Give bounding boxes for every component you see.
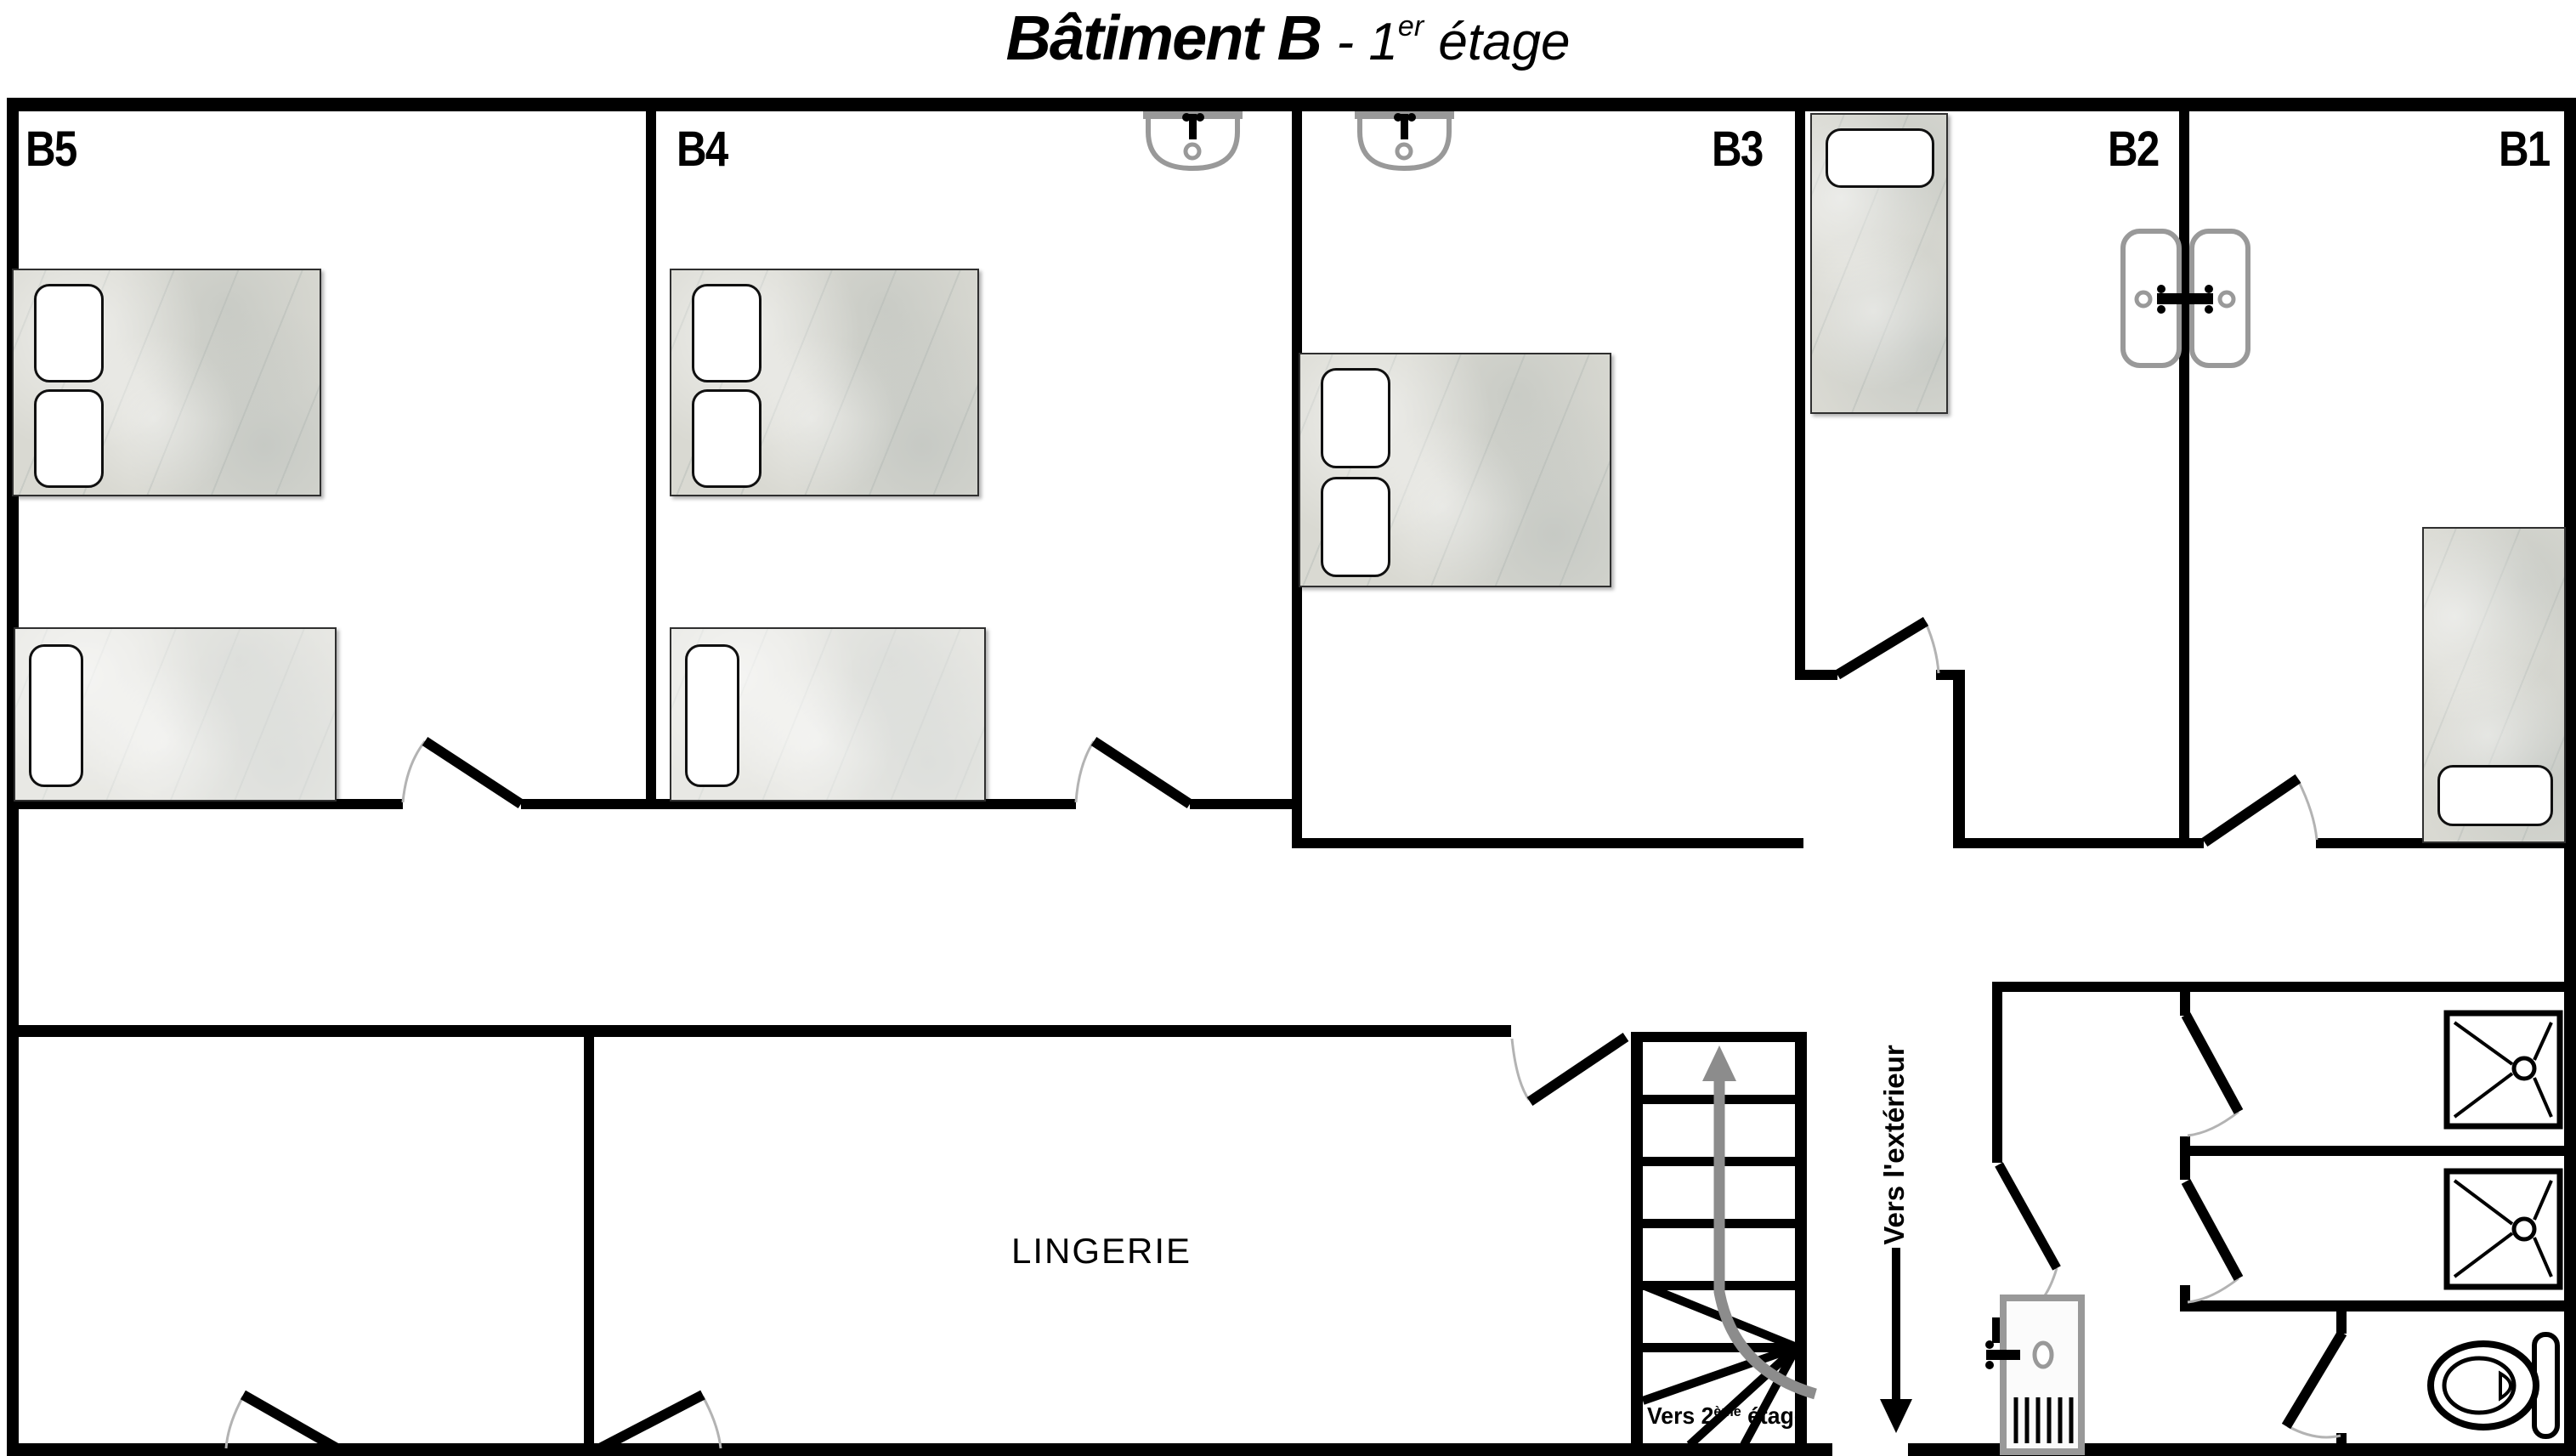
door-swing-arc — [403, 741, 425, 802]
door-shower-2 — [2186, 1181, 2239, 1302]
door-leaf — [597, 1395, 703, 1450]
door-swing-arc — [703, 1397, 721, 1448]
door-bottom-left-room — [226, 1395, 340, 1450]
door-leaf — [1094, 741, 1190, 804]
door-swing-arc — [2188, 1278, 2239, 1302]
door-b5 — [403, 741, 521, 804]
to-exterior-label: Vers l'extérieur — [1878, 1034, 1911, 1256]
door-b4 — [1076, 741, 1190, 804]
door-b2 — [1837, 621, 1939, 675]
laundry-label: LINGERIE — [1011, 1231, 1192, 1272]
door-leaf — [2286, 1333, 2342, 1426]
title-floor: - 1er étage — [1337, 13, 1571, 71]
door-leaf — [2186, 1181, 2239, 1278]
door-leaf — [243, 1395, 340, 1450]
shower-tray-icon-2 — [2447, 1171, 2560, 1287]
door-swing-arc — [2188, 1112, 2239, 1136]
exit-arrow-icon — [1880, 1248, 1912, 1433]
room-label-b3: B3 — [1712, 121, 1763, 178]
door-leaf — [1999, 1164, 2057, 1268]
room-label-b1: B1 — [2499, 121, 2550, 178]
door-shower-1 — [2186, 1015, 2239, 1136]
door-leaf — [425, 741, 521, 804]
room-label-b2: B2 — [2108, 121, 2159, 178]
door-wc — [2286, 1333, 2342, 1437]
sink-icon-b3 — [1355, 111, 1454, 168]
door-swing-arc — [2288, 1426, 2341, 1437]
door-leaf — [2186, 1015, 2239, 1112]
stairs-up-arrow-icon — [1702, 1045, 1815, 1394]
door-leaf — [1530, 1037, 1626, 1102]
door-laundry-bottom — [597, 1395, 721, 1450]
door-swing-arc — [2298, 780, 2317, 840]
room-label-b5: B5 — [25, 121, 76, 178]
floor-plan: Bâtiment B - 1er étage — [0, 0, 2576, 1456]
exterior-door-icon — [1985, 1298, 2081, 1452]
toilet-icon — [2431, 1334, 2557, 1436]
to-second-floor-label: Vers 2ème étage — [1647, 1402, 1807, 1430]
door-b1 — [2205, 779, 2317, 842]
double-sink-icon — [2123, 231, 2248, 365]
door-swing-arc — [1076, 741, 1094, 802]
door-leaf — [1837, 621, 1926, 675]
door-laundry-corridor — [1512, 1037, 1626, 1102]
door-swing-arc — [226, 1397, 243, 1448]
fixtures-layer — [0, 0, 2576, 1456]
door-leaf — [2205, 779, 2298, 842]
room-label-b4: B4 — [677, 121, 728, 178]
door-swing-arc — [1926, 623, 1939, 673]
shower-tray-icon-1 — [2447, 1013, 2560, 1126]
sink-icon-b4 — [1143, 111, 1243, 168]
door-swing-arc — [1512, 1039, 1529, 1100]
title-building: Bâtiment B — [1005, 3, 1321, 73]
page-title: Bâtiment B - 1er étage — [1005, 2, 1570, 74]
